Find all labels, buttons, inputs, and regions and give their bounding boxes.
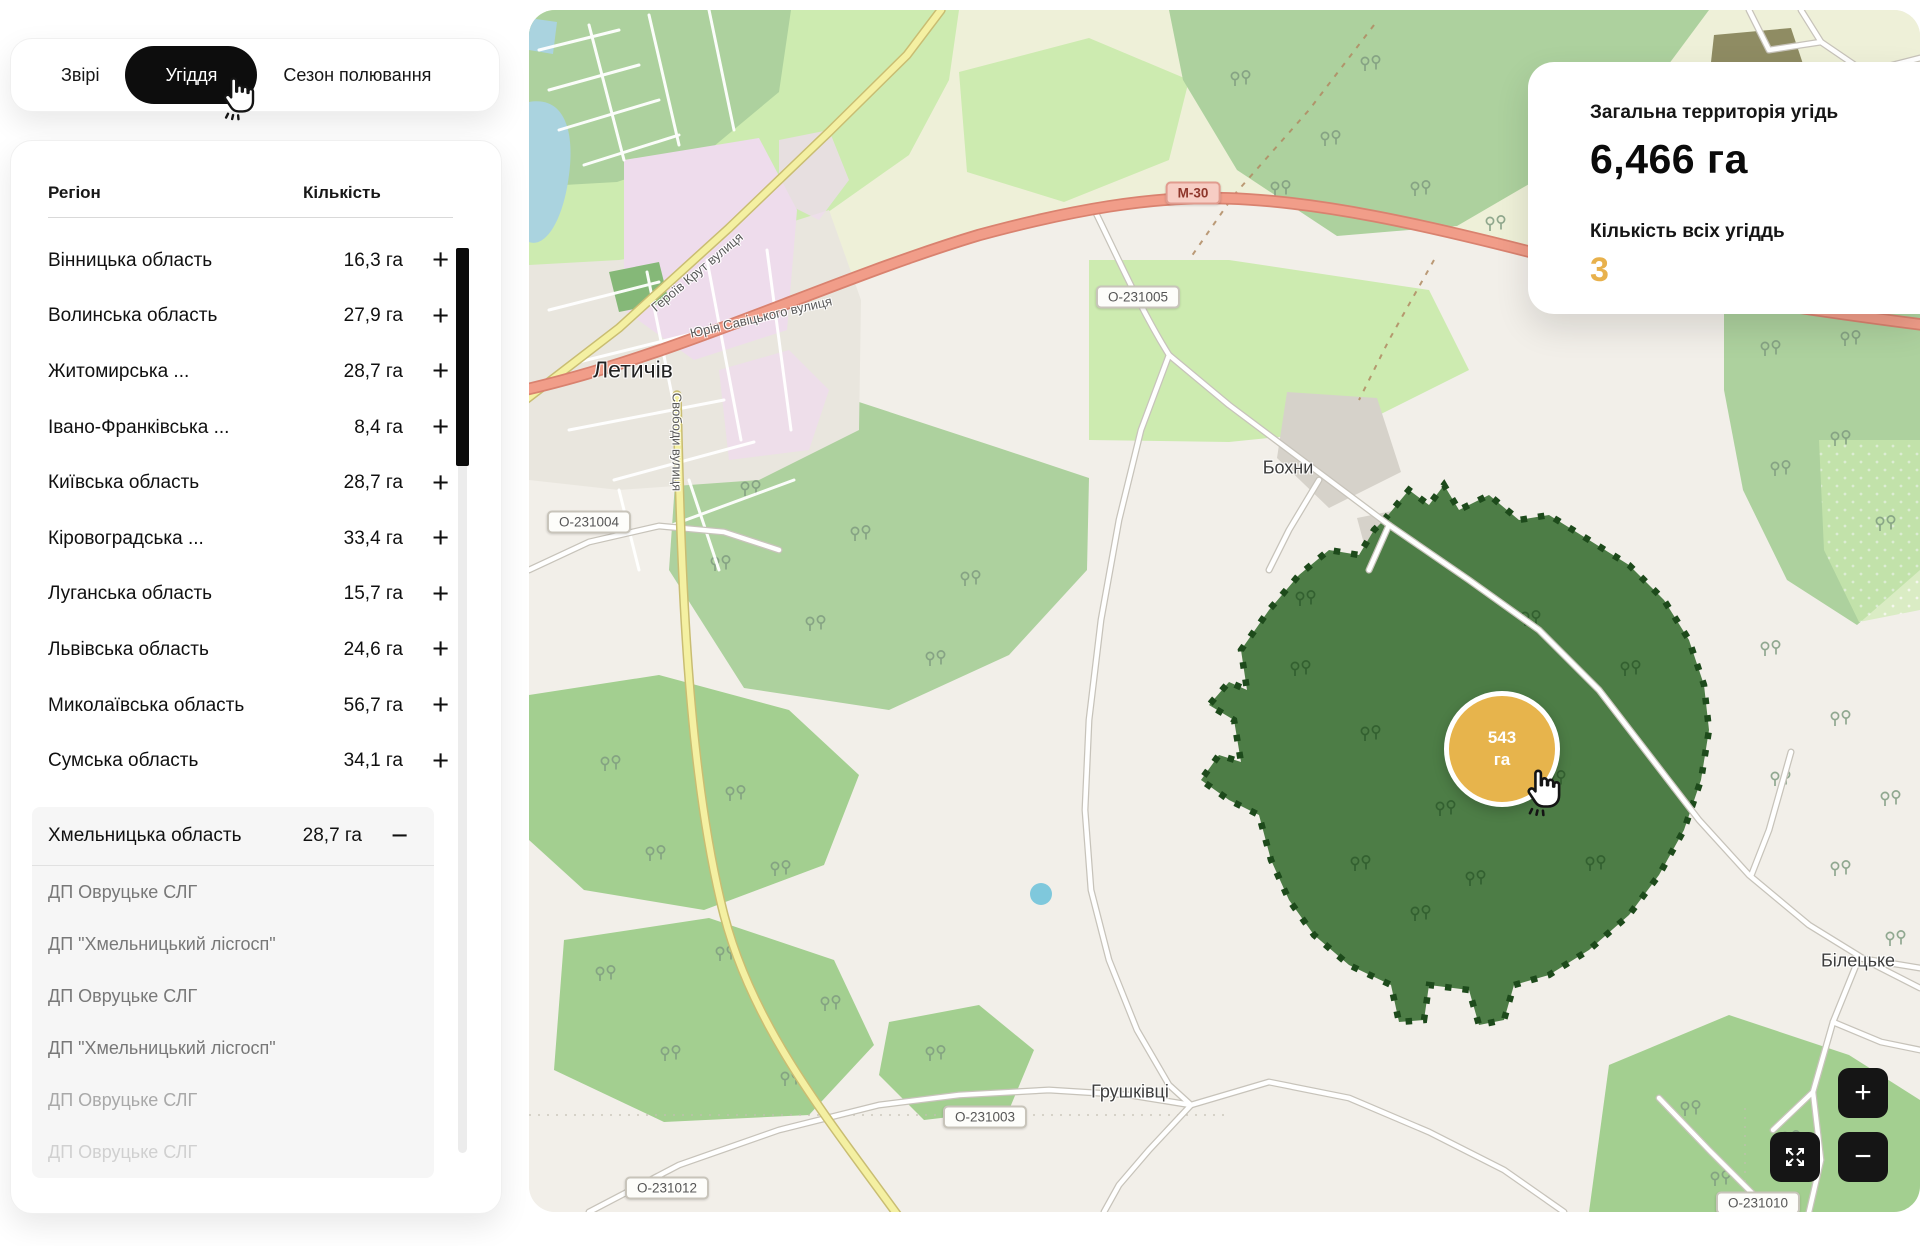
ground-list-item[interactable]: ДП "Хмельницький лісгосп"	[32, 918, 434, 970]
summary-card: Загальна территорія угідь 6,466 га Кільк…	[1528, 62, 1920, 314]
region-name: Кіровоградська ...	[48, 528, 303, 550]
tab-animals[interactable]: Звірі	[39, 65, 121, 86]
road-shield: О-231003	[943, 1106, 1027, 1129]
ground-list-item[interactable]: ДП "Хмельницький лісгосп"	[32, 1022, 434, 1074]
expand-icon[interactable]: +	[403, 302, 449, 331]
region-name: Миколаївська область	[48, 695, 303, 717]
column-region: Регіон	[48, 183, 101, 217]
region-name: Хмельницька область	[48, 825, 262, 847]
region-name: Сумська область	[48, 750, 303, 772]
scrollbar-thumb[interactable]	[456, 248, 469, 466]
place-label: Грушківці	[1091, 1082, 1169, 1103]
table-row[interactable]: Луганська область 15,7 га +	[11, 567, 501, 623]
expand-icon[interactable]: +	[403, 691, 449, 720]
table-row[interactable]: Вінницька область 16,3 га +	[11, 233, 501, 289]
expand-icon[interactable]: +	[403, 413, 449, 442]
region-value: 24,6 га	[303, 639, 403, 661]
region-children: ДП Овруцьке СЛГ ДП "Хмельницький лісгосп…	[32, 866, 434, 1178]
table-row[interactable]: Львівська область 24,6 га +	[11, 622, 501, 678]
table-row[interactable]: Івано-Франківська ... 8,4 га +	[11, 400, 501, 456]
tab-bar: Звірі Угіддя Сезон полювання	[10, 38, 500, 112]
zoom-out-button[interactable]: −	[1838, 1132, 1888, 1182]
expand-icon[interactable]: +	[403, 635, 449, 664]
region-name: Івано-Франківська ...	[48, 417, 303, 439]
ground-list-item[interactable]: ДП Овруцьке СЛГ	[32, 1074, 434, 1126]
plus-icon: +	[1854, 1076, 1872, 1110]
region-name: Київська область	[48, 472, 303, 494]
area-marker-543ga[interactable]: 543 га	[1444, 691, 1560, 807]
road-shield: О-231004	[547, 511, 631, 534]
region-name: Львівська область	[48, 639, 303, 661]
region-value: 28,7 га	[303, 472, 403, 494]
region-name: Волинська область	[48, 305, 303, 327]
region-name: Луганська область	[48, 583, 303, 605]
ground-list-item[interactable]: ДП Овруцьке СЛГ	[32, 970, 434, 1022]
total-area-value: 6,466 га	[1590, 136, 1896, 183]
table-row[interactable]: Сумська область 34,1 га +	[11, 733, 501, 789]
region-name: Вінницька область	[48, 250, 303, 272]
region-value: 27,9 га	[303, 305, 403, 327]
region-value: 34,1 га	[303, 750, 403, 772]
marker-unit: га	[1494, 749, 1511, 771]
table-row[interactable]: Кіровоградська ... 33,4 га +	[11, 511, 501, 567]
tab-hunting-season[interactable]: Сезон полювання	[261, 65, 453, 86]
road-shield: О-231005	[1096, 286, 1180, 309]
minus-icon: −	[1854, 1140, 1872, 1174]
ground-list-item[interactable]: ДП Овруцьке СЛГ	[32, 866, 434, 918]
road-shield: М-30	[1166, 182, 1221, 205]
expand-icon[interactable]: +	[403, 469, 449, 498]
place-label: Білецьке	[1821, 951, 1895, 972]
region-value: 16,3 га	[303, 250, 403, 272]
table-row[interactable]: Миколаївська область 56,7 га +	[11, 678, 501, 734]
place-label: Летичів	[593, 357, 673, 384]
road-shield: О-231012	[625, 1177, 709, 1200]
expanded-region-group: Хмельницька область 28,7 га − ДП Овруцьк…	[32, 807, 434, 1178]
expand-icon[interactable]: +	[403, 357, 449, 386]
table-row[interactable]: Житомирська ... 28,7 га +	[11, 344, 501, 400]
street-label: Героїв Крут вулиця	[648, 229, 746, 314]
total-area-label: Загальна территорія угідь	[1590, 102, 1896, 124]
region-name: Житомирська ...	[48, 361, 303, 383]
tab-grounds[interactable]: Угіддя	[125, 46, 257, 104]
region-value: 8,4 га	[303, 417, 403, 439]
expand-icon[interactable]: +	[403, 246, 449, 275]
collapse-icon[interactable]: −	[362, 822, 408, 851]
region-value: 28,7 га	[303, 361, 403, 383]
ground-list-item[interactable]: ДП Овруцьке СЛГ	[32, 1126, 434, 1178]
grounds-count-label: Кількість всіх угіддь	[1590, 221, 1896, 243]
table-row-expanded[interactable]: Хмельницька область 28,7 га −	[32, 807, 434, 866]
expand-icon[interactable]: +	[403, 747, 449, 776]
region-value: 33,4 га	[303, 528, 403, 550]
road-shield: О-231010	[1716, 1192, 1800, 1213]
regions-panel: Регіон Кількість Вінницька область 16,3 …	[10, 140, 502, 1214]
expand-icon[interactable]: +	[403, 524, 449, 553]
region-value: 28,7 га	[262, 825, 362, 847]
table-row[interactable]: Київська область 28,7 га +	[11, 455, 501, 511]
expand-icon[interactable]: +	[403, 580, 449, 609]
column-count: Кількість	[303, 183, 453, 217]
fullscreen-icon	[1782, 1144, 1808, 1170]
app-window: ЛетичівБохниГрушківціБілецькеМ-30О-23100…	[0, 0, 1920, 1246]
zoom-in-button[interactable]: +	[1838, 1068, 1888, 1118]
street-label: Юрія Савіцького вулиця	[689, 293, 834, 340]
region-rows: Вінницька область 16,3 га + Волинська об…	[11, 233, 501, 789]
place-label: Бохни	[1263, 458, 1314, 479]
street-label: Свободи вулиця	[670, 393, 685, 491]
table-row[interactable]: Волинська область 27,9 га +	[11, 289, 501, 345]
region-value: 15,7 га	[303, 583, 403, 605]
fullscreen-button[interactable]	[1770, 1132, 1820, 1182]
grounds-count-value: 3	[1590, 251, 1896, 290]
table-header: Регіон Кількість	[48, 183, 453, 218]
marker-value: 543	[1488, 727, 1516, 749]
region-value: 56,7 га	[303, 695, 403, 717]
